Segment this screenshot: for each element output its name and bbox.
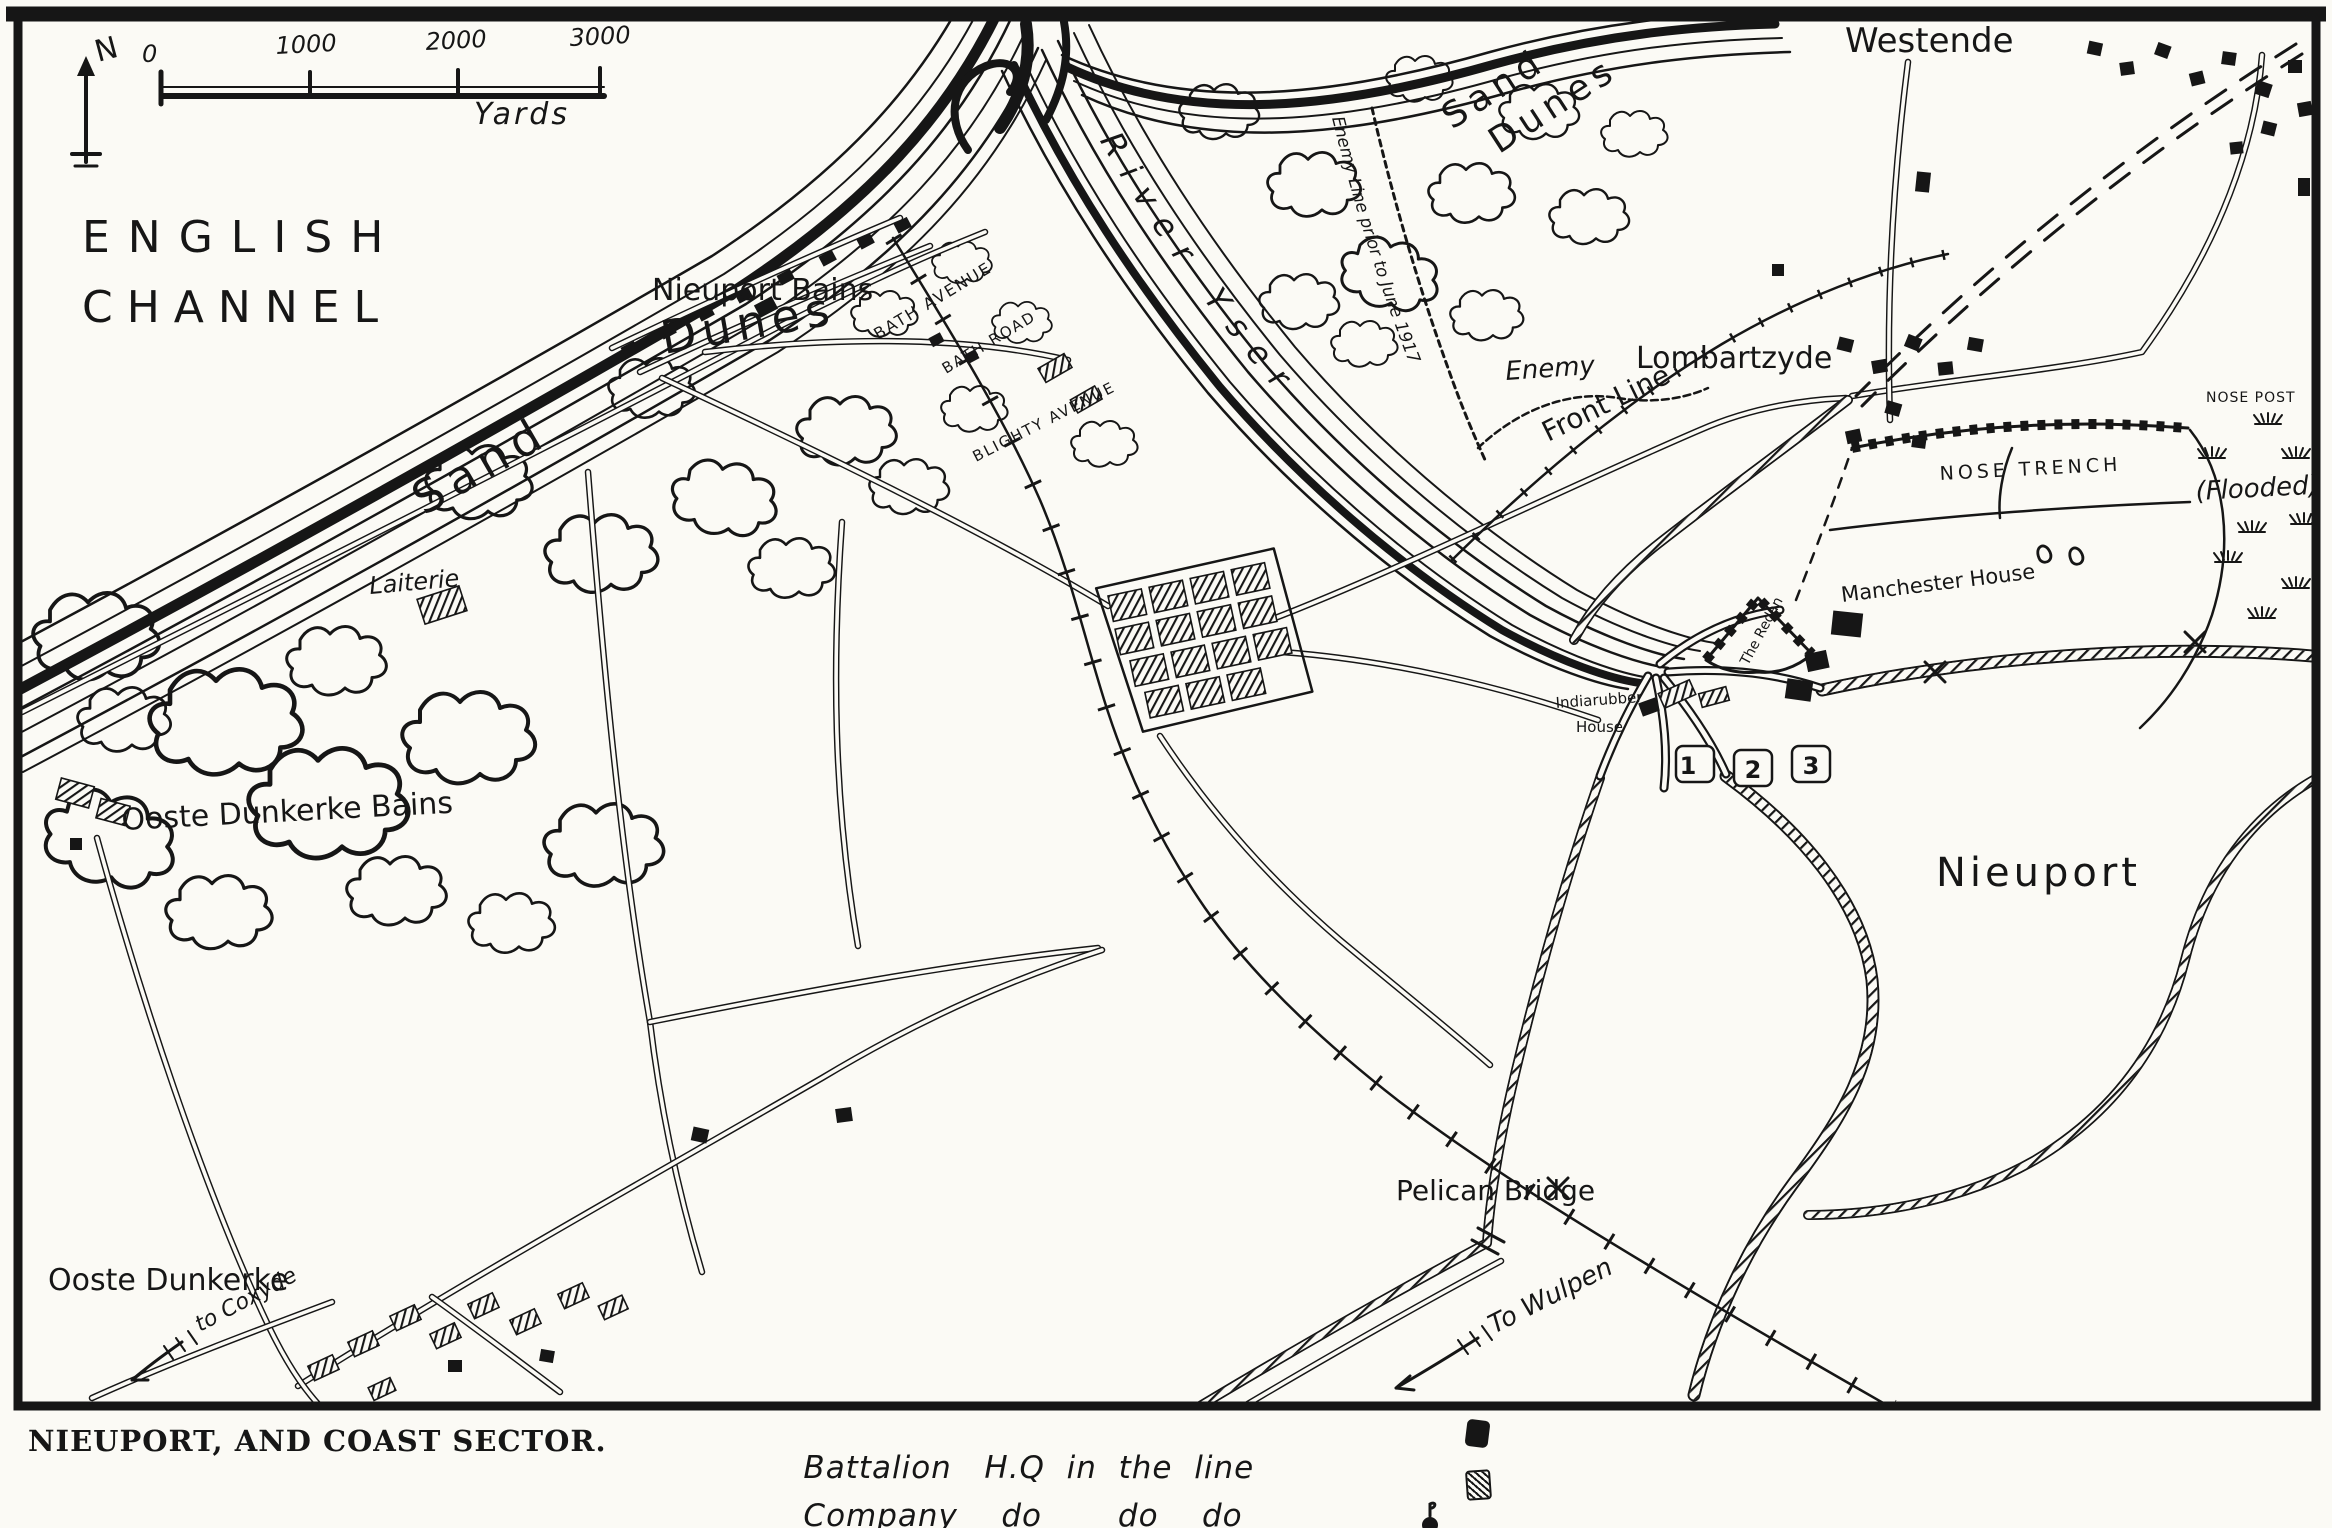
legend-company-label: Company do do do <box>803 1498 1242 1528</box>
label-nieuport: Nieuport <box>1936 850 2141 896</box>
legend-row-company: Company do do do <box>760 1462 1760 1510</box>
scale-tick-2000: 2000 <box>425 25 487 56</box>
compass-north-label: N <box>91 30 122 70</box>
sea-label-line2: CHANNEL <box>82 282 392 333</box>
label-lombartzyde: Lombartzyde <box>1636 341 1832 376</box>
label-to-wulpen: To Wulpen <box>1484 1252 1618 1340</box>
building-cluster-ooste-dunkerke <box>308 1283 628 1401</box>
label-indiarubber-2: House <box>1576 718 1623 736</box>
map-stage: ENGLISH CHANNEL Westende Sand Dunes Enem… <box>0 0 2332 1528</box>
scale-tick-3000: 3000 <box>569 21 631 52</box>
label-westende: Westende <box>1845 21 2014 61</box>
dashed-road-westende <box>1796 44 2302 600</box>
sea-label-line1: ENGLISH <box>82 212 401 263</box>
label-manchester-house: Manchester House <box>1840 559 2037 607</box>
canal-crossing-marks <box>1548 632 2205 1198</box>
old-enemy-line <box>1372 108 1708 462</box>
company-flag-icon <box>1354 1462 1443 1528</box>
label-lock-1: 1 <box>1680 752 1697 780</box>
north-compass: N <box>72 30 122 166</box>
scale-tick-1000: 1000 <box>275 29 337 60</box>
scale-tick-0: 0 <box>142 40 157 68</box>
label-nose-trench: NOSE TRENCH <box>1939 454 2122 485</box>
northeast-beach <box>1062 12 1790 133</box>
legend: Battalion H.Q in the line Company do do … <box>760 1414 1760 1510</box>
label-flooded: (Flooded) <box>2195 471 2320 507</box>
battalion-hq-symbol <box>1464 1419 1490 1449</box>
label-lock-3: 3 <box>1803 752 1820 780</box>
label-pelican-bridge: Pelican Bridge <box>1396 1174 1595 1207</box>
marsh-symbols <box>2198 413 2318 618</box>
to-wulpen-arrow <box>1396 1326 1492 1390</box>
scale-bar: 0 1000 2000 3000 Yards <box>142 21 631 132</box>
map-content: ENGLISH CHANNEL Westende Sand Dunes Enem… <box>0 0 2332 1436</box>
scale-unit: Yards <box>474 97 570 132</box>
company-hq-symbol <box>1465 1469 1492 1501</box>
canals <box>1180 400 2332 1418</box>
label-ooste-dunkerke-bains: Ooste Dunkerke Bains <box>121 786 454 838</box>
label-enemy: Enemy <box>1504 351 1596 387</box>
nieuport-town-grid <box>1096 547 1313 735</box>
label-nose-post: NOSE POST <box>2206 390 2296 406</box>
legend-row-battalion: Battalion H.Q in the line <box>760 1414 1760 1462</box>
map-svg: ENGLISH CHANNEL Westende Sand Dunes Enem… <box>0 0 2332 1528</box>
label-lock-2: 2 <box>1745 756 1762 784</box>
label-sand-mid: Sand <box>403 405 558 526</box>
building-cluster-od-bains <box>56 778 130 850</box>
map-caption: NIEUPORT, AND COAST SECTOR. <box>28 1424 607 1458</box>
